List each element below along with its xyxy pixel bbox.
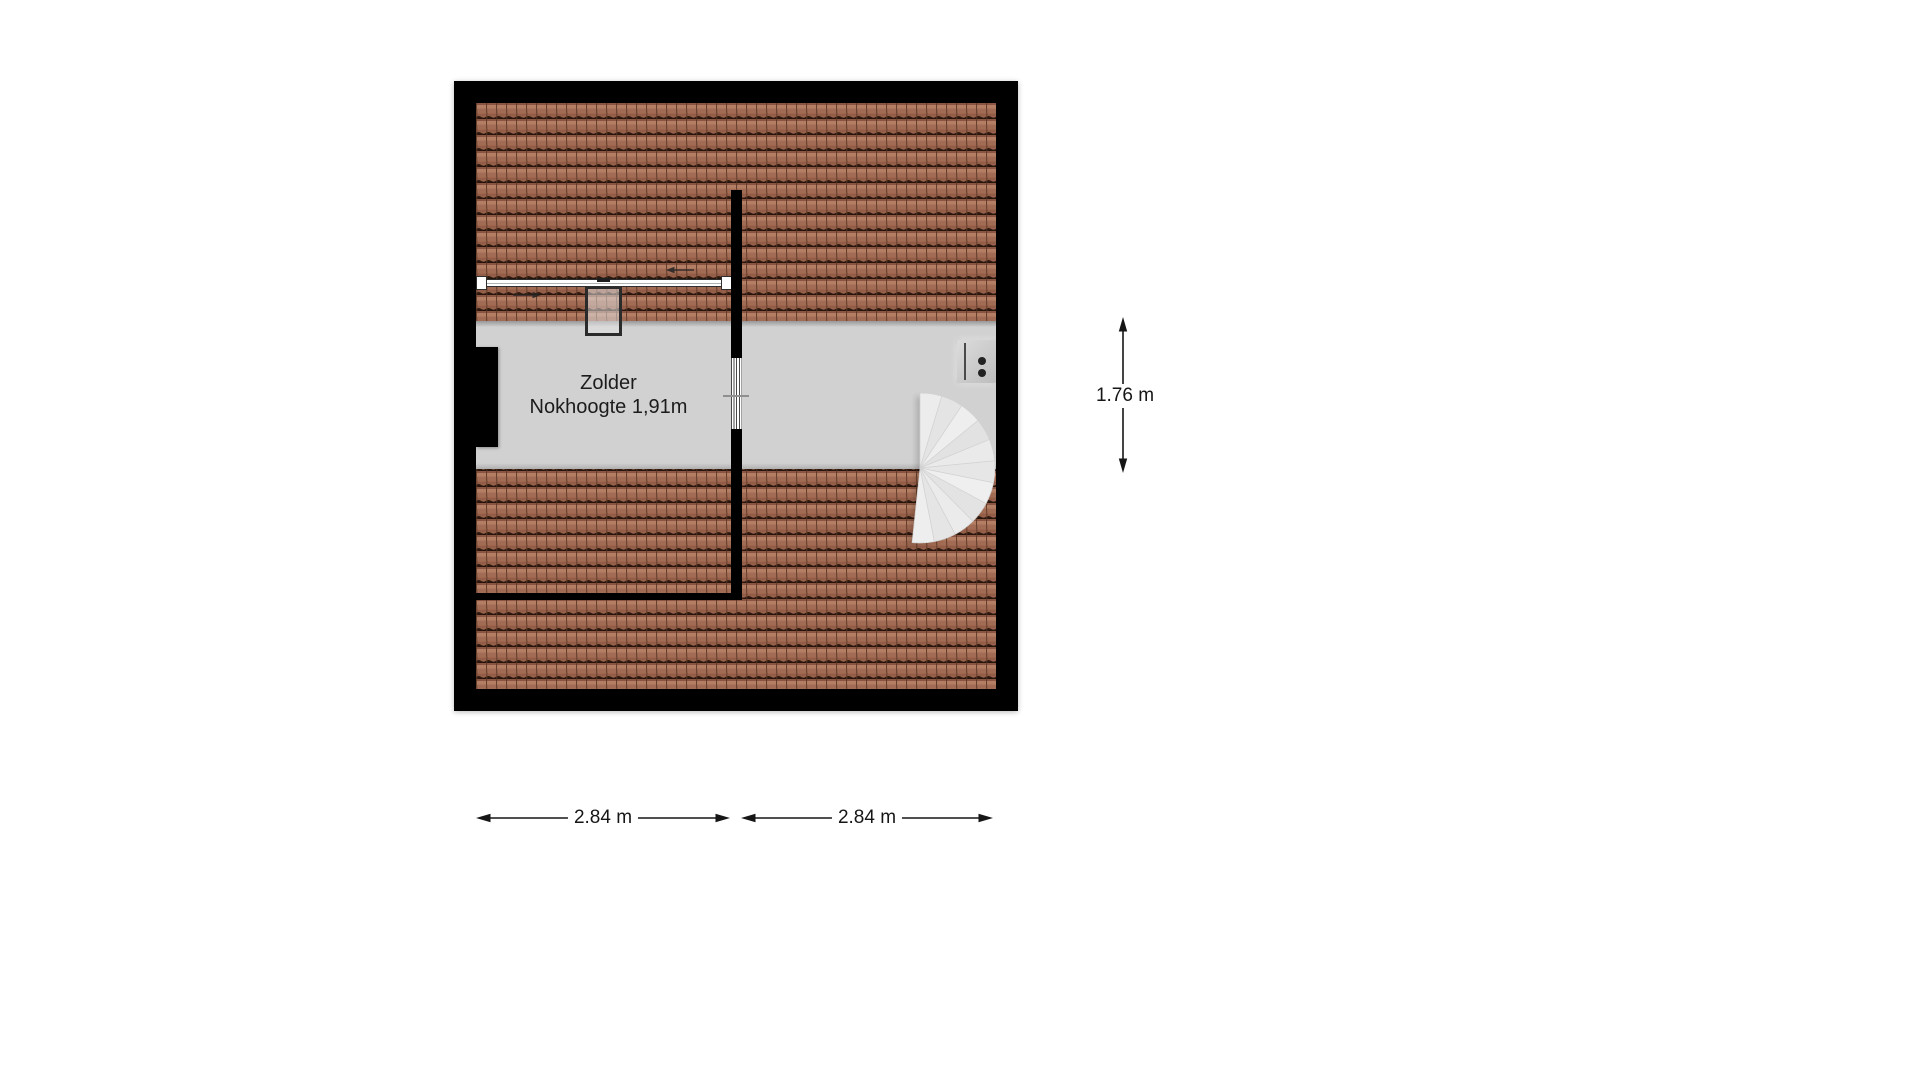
wall-unit-dot <box>978 357 986 365</box>
skylight-window <box>585 286 622 336</box>
room-subtitle: Nokhoogte 1,91m <box>486 395 731 419</box>
dimension-label-right: 1.76 m <box>1090 384 1160 408</box>
dimension-label-bottom-left: 2.84 m <box>568 806 638 830</box>
dimension-label-bottom-right: 2.84 m <box>832 806 902 830</box>
floorplan-canvas: Zolder Nokhoogte 1,91m 2.84 m 2.84 m 1.7… <box>0 0 1920 1080</box>
building-outline: Zolder Nokhoogte 1,91m <box>454 81 1018 711</box>
roof-rail-center-tick <box>597 278 610 282</box>
wall-unit-line <box>964 343 966 380</box>
door-opening-hatch <box>731 358 742 429</box>
room-name: Zolder <box>486 371 731 395</box>
wall-unit-icon <box>957 340 996 383</box>
plan-interior: Zolder Nokhoogte 1,91m <box>476 103 996 689</box>
wall-unit-dot <box>978 369 986 377</box>
room-label: Zolder Nokhoogte 1,91m <box>486 371 731 419</box>
interior-wall-horizontal <box>476 593 742 600</box>
roof-rail-midline <box>477 283 731 284</box>
roof-rail-cap-left <box>476 276 487 290</box>
